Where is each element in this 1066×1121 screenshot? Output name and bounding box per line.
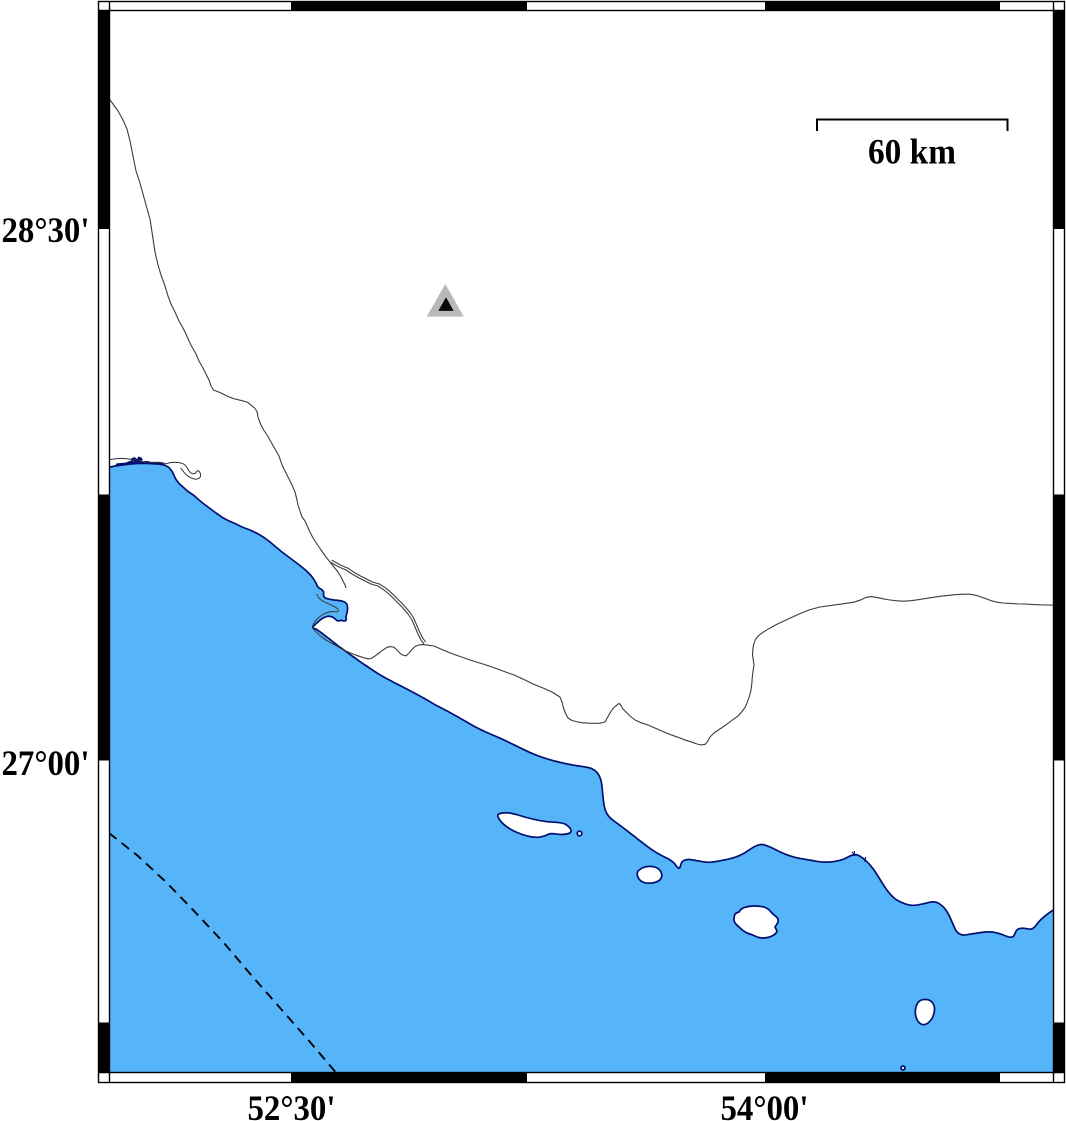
- svg-text:52°30': 52°30': [248, 1088, 336, 1121]
- svg-text:27°00': 27°00': [2, 743, 90, 783]
- svg-text:60 km: 60 km: [868, 132, 956, 172]
- svg-text:28°30': 28°30': [2, 210, 90, 250]
- svg-text:54°00': 54°00': [721, 1088, 809, 1121]
